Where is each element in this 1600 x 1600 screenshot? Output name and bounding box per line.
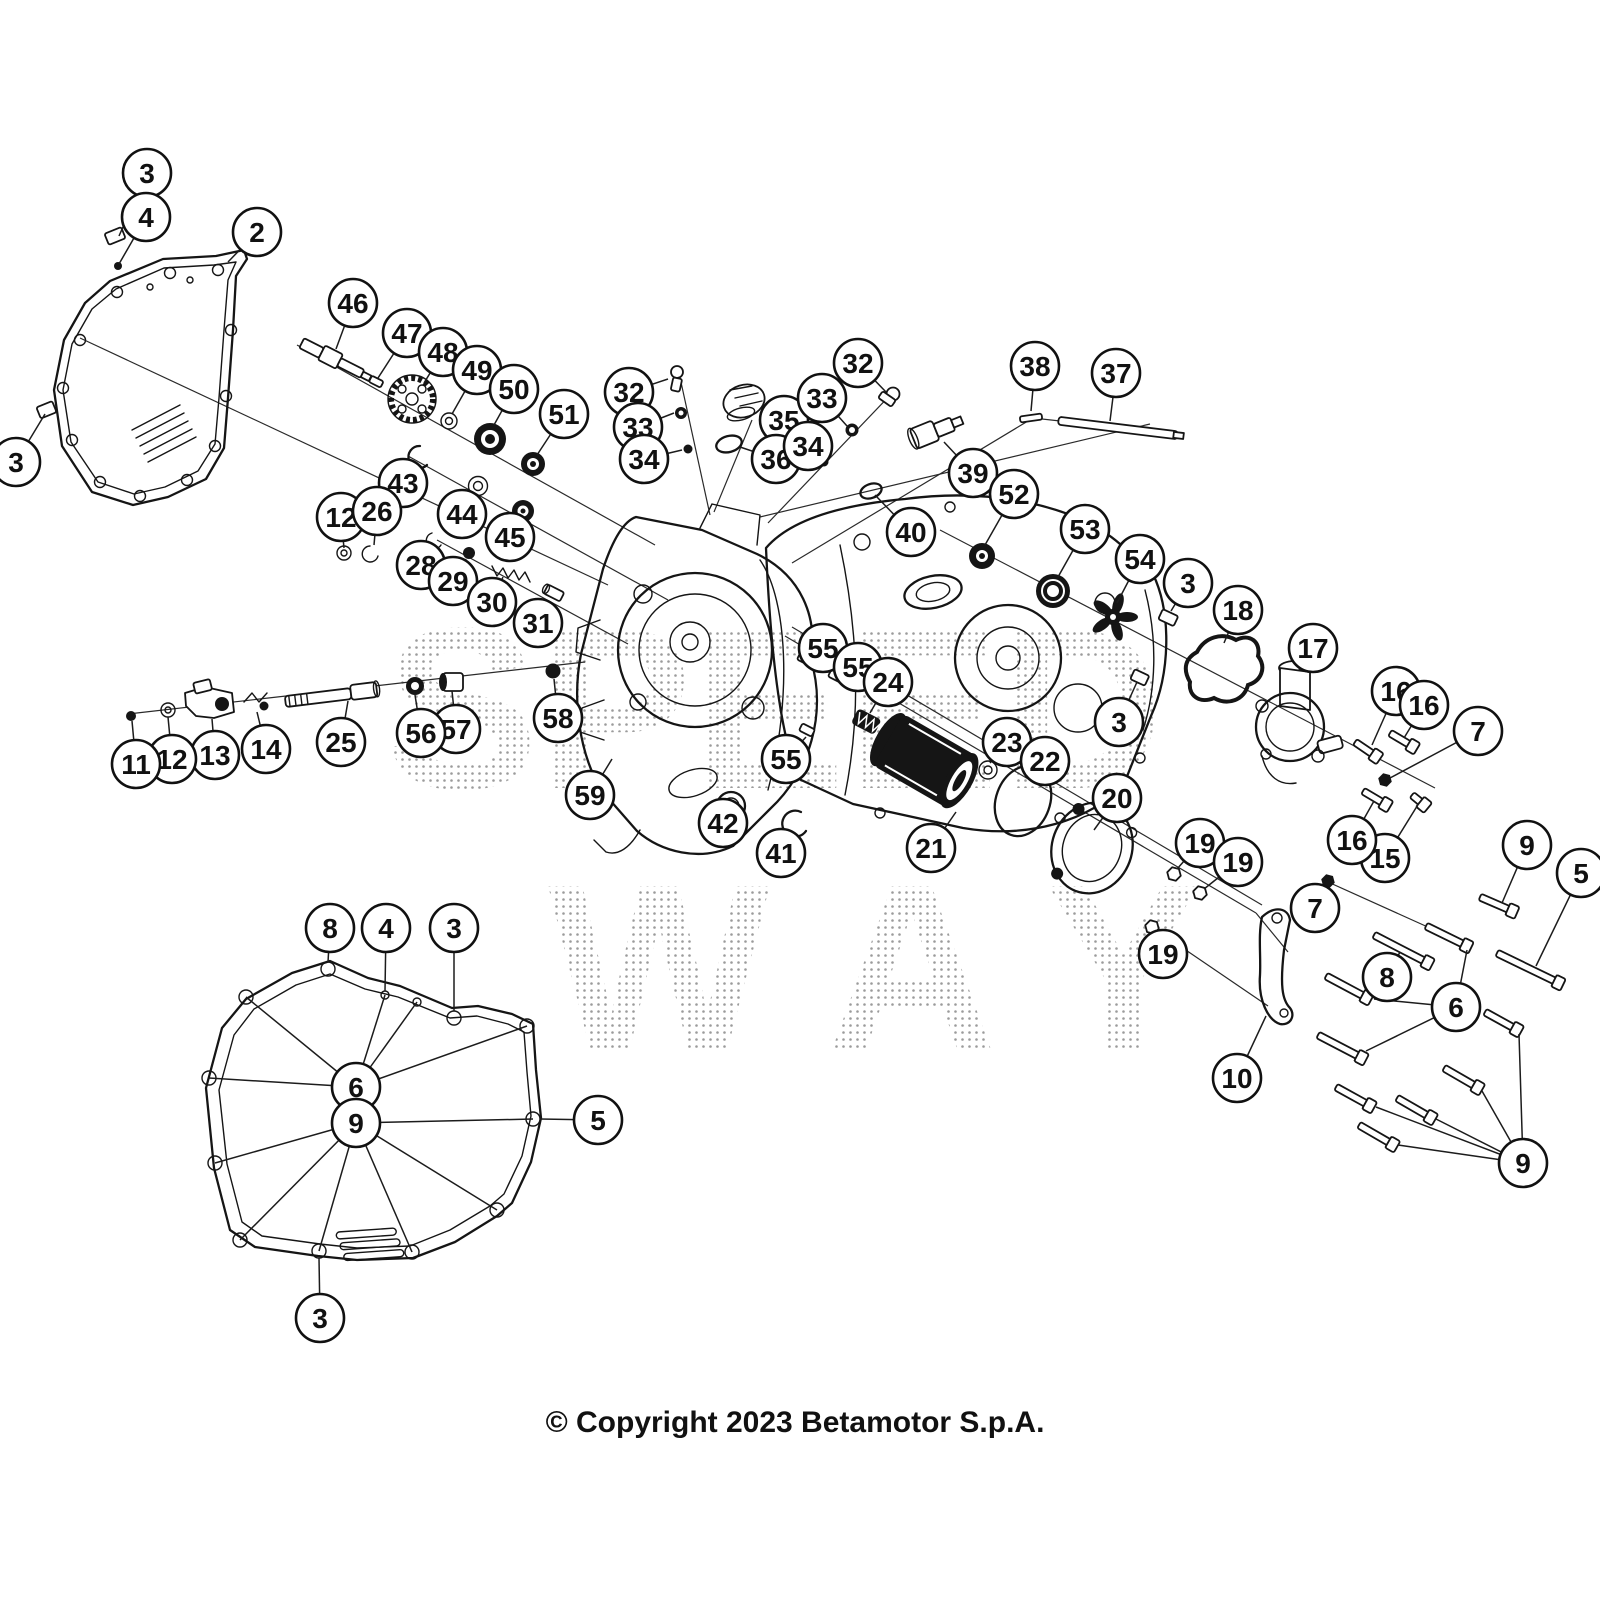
callout-7: 7 xyxy=(1454,707,1502,755)
parts-diagram-page: SPEED WAY xyxy=(0,0,1600,1600)
svg-text:31: 31 xyxy=(522,608,553,639)
bolt xyxy=(1423,920,1474,954)
svg-text:30: 30 xyxy=(476,587,507,618)
svg-text:46: 46 xyxy=(337,288,368,319)
callout-20: 20 xyxy=(1093,774,1141,822)
callout-42: 42 xyxy=(699,799,747,847)
bolt xyxy=(1482,1006,1524,1037)
callout-3: 3 xyxy=(430,904,478,952)
svg-text:16: 16 xyxy=(1408,690,1439,721)
callout-24: 24 xyxy=(864,658,912,706)
bolt xyxy=(1333,1081,1377,1113)
callout-26: 26 xyxy=(353,487,401,535)
svg-text:17: 17 xyxy=(1297,633,1328,664)
svg-text:7: 7 xyxy=(1470,716,1486,747)
callout-22: 22 xyxy=(1021,737,1069,785)
svg-text:54: 54 xyxy=(1124,544,1156,575)
svg-text:41: 41 xyxy=(765,838,796,869)
thrust-washer-49 xyxy=(441,413,457,429)
svg-text:19: 19 xyxy=(1222,847,1253,878)
callout-30: 30 xyxy=(468,578,516,626)
gasket-vent-slots xyxy=(132,405,196,462)
callout-32: 32 xyxy=(834,339,882,387)
callout-45: 45 xyxy=(486,513,534,561)
callout-34: 34 xyxy=(784,422,832,470)
svg-text:16: 16 xyxy=(1336,825,1367,856)
callout-8: 8 xyxy=(306,904,354,952)
callout-16: 16 xyxy=(1400,681,1448,729)
primary-gear-50 xyxy=(474,423,506,455)
breather-fitting-39 xyxy=(905,409,965,450)
svg-text:51: 51 xyxy=(548,399,579,430)
callout-9: 9 xyxy=(1499,1139,1547,1187)
callout-16: 16 xyxy=(1328,816,1376,864)
svg-text:34: 34 xyxy=(792,431,824,462)
svg-text:3: 3 xyxy=(312,1303,328,1334)
svg-text:39: 39 xyxy=(957,458,988,489)
bolt xyxy=(1477,891,1519,919)
svg-text:12: 12 xyxy=(325,502,356,533)
seal-52 xyxy=(969,543,995,569)
svg-text:25: 25 xyxy=(325,727,356,758)
callout-3: 3 xyxy=(0,438,40,486)
callout-3: 3 xyxy=(1095,698,1143,746)
bolt xyxy=(1408,790,1432,813)
svg-text:19: 19 xyxy=(1184,828,1215,859)
washer-12-clip-26 xyxy=(337,546,378,562)
bolt xyxy=(1315,1029,1369,1066)
svg-text:10: 10 xyxy=(1221,1063,1252,1094)
callout-37: 37 xyxy=(1092,349,1140,397)
svg-text:2: 2 xyxy=(249,217,265,248)
svg-text:8: 8 xyxy=(1379,962,1395,993)
svg-text:4: 4 xyxy=(138,202,154,233)
callout-11: 11 xyxy=(112,740,160,788)
svg-text:12: 12 xyxy=(156,744,187,775)
svg-text:9: 9 xyxy=(348,1108,364,1139)
callout-3: 3 xyxy=(1164,559,1212,607)
nut-29 xyxy=(463,547,475,559)
callout-56: 56 xyxy=(397,709,445,757)
svg-text:14: 14 xyxy=(250,734,282,765)
drain-bolt-left-set xyxy=(671,366,693,454)
svg-text:18: 18 xyxy=(1222,595,1253,626)
callout-50: 50 xyxy=(490,365,538,413)
svg-text:32: 32 xyxy=(842,348,873,379)
svg-text:55: 55 xyxy=(770,744,801,775)
bearing-51 xyxy=(521,452,545,476)
bolt xyxy=(1387,727,1421,754)
callout-52: 52 xyxy=(990,470,1038,518)
dipstick-rod-37 xyxy=(1058,417,1184,440)
callout-34: 34 xyxy=(620,435,668,483)
callout-59: 59 xyxy=(566,771,614,819)
svg-text:19: 19 xyxy=(1147,939,1178,970)
callout-54: 54 xyxy=(1116,535,1164,583)
svg-text:22: 22 xyxy=(1029,746,1060,777)
callout-55: 55 xyxy=(762,735,810,783)
bolt xyxy=(1360,785,1394,812)
screw-plug-left xyxy=(36,401,56,418)
axis-line xyxy=(714,420,752,512)
callout-17: 17 xyxy=(1289,624,1337,672)
svg-text:45: 45 xyxy=(494,522,525,553)
callout-46: 46 xyxy=(329,279,377,327)
svg-text:29: 29 xyxy=(437,566,468,597)
clutch-cover-gasket xyxy=(54,250,247,505)
bolt xyxy=(1356,1119,1401,1152)
callout-21: 21 xyxy=(907,824,955,872)
svg-text:26: 26 xyxy=(361,496,392,527)
svg-text:40: 40 xyxy=(895,517,926,548)
svg-text:23: 23 xyxy=(991,727,1022,758)
exploded-parts-diagram: SPEED WAY xyxy=(0,0,1600,1600)
svg-text:56: 56 xyxy=(405,718,436,749)
nut xyxy=(1378,773,1392,787)
callout-44: 44 xyxy=(438,490,486,538)
callout-33: 33 xyxy=(798,374,846,422)
svg-text:24: 24 xyxy=(872,667,904,698)
callout-10: 10 xyxy=(1213,1054,1261,1102)
callout-19: 19 xyxy=(1214,838,1262,886)
svg-text:44: 44 xyxy=(446,499,478,530)
svg-text:5: 5 xyxy=(1573,858,1589,889)
bolt xyxy=(1351,737,1383,765)
callout-31: 31 xyxy=(514,599,562,647)
bolt xyxy=(1441,1062,1486,1095)
callout-40: 40 xyxy=(887,508,935,556)
svg-text:49: 49 xyxy=(461,355,492,386)
callout-13: 13 xyxy=(191,731,239,779)
svg-text:21: 21 xyxy=(915,833,946,864)
callout-3: 3 xyxy=(296,1294,344,1342)
pin-38 xyxy=(1020,413,1043,422)
svg-text:58: 58 xyxy=(542,703,573,734)
bolt xyxy=(1494,947,1566,991)
svg-text:3: 3 xyxy=(1180,568,1196,599)
callout-7: 7 xyxy=(1291,884,1339,932)
svg-text:37: 37 xyxy=(1100,358,1131,389)
callout-25: 25 xyxy=(317,718,365,766)
svg-text:3: 3 xyxy=(8,447,24,478)
kickstart-sprocket xyxy=(388,375,436,423)
callout-18: 18 xyxy=(1214,586,1262,634)
callout-58: 58 xyxy=(534,694,582,742)
callout-4: 4 xyxy=(362,904,410,952)
svg-text:34: 34 xyxy=(628,444,660,475)
callout-9: 9 xyxy=(1503,821,1551,869)
svg-text:47: 47 xyxy=(391,318,422,349)
callout-14: 14 xyxy=(242,725,290,773)
bolt xyxy=(1394,1092,1439,1125)
callout-41: 41 xyxy=(757,829,805,877)
callout-53: 53 xyxy=(1061,505,1109,553)
screw-plug-top-left xyxy=(104,227,125,270)
svg-text:38: 38 xyxy=(1019,351,1050,382)
callout-3: 3 xyxy=(123,149,171,197)
pump-gear-53 xyxy=(1036,574,1070,608)
svg-text:33: 33 xyxy=(806,383,837,414)
idle-gear-shaft xyxy=(298,335,374,384)
callout-5: 5 xyxy=(1557,849,1600,897)
cover-vent-slots xyxy=(336,1228,404,1262)
callout-8: 8 xyxy=(1363,953,1411,1001)
svg-text:7: 7 xyxy=(1307,893,1323,924)
axis-line xyxy=(679,373,710,515)
gasket-bolt-holes xyxy=(58,265,237,502)
svg-text:20: 20 xyxy=(1101,783,1132,814)
water-pump-body xyxy=(1256,661,1343,784)
axis-line xyxy=(1328,882,1430,928)
callout-4: 4 xyxy=(122,193,170,241)
leader-line xyxy=(356,1119,533,1123)
svg-text:3: 3 xyxy=(1111,707,1127,738)
svg-text:5: 5 xyxy=(590,1105,606,1136)
svg-text:3: 3 xyxy=(446,913,462,944)
callout-6: 6 xyxy=(1432,983,1480,1031)
callout-2: 2 xyxy=(233,208,281,256)
svg-text:6: 6 xyxy=(1448,992,1464,1023)
svg-text:52: 52 xyxy=(998,479,1029,510)
callout-51: 51 xyxy=(540,390,588,438)
svg-text:50: 50 xyxy=(498,374,529,405)
svg-text:9: 9 xyxy=(1515,1148,1531,1179)
callout-5: 5 xyxy=(574,1096,622,1144)
svg-text:3: 3 xyxy=(139,158,155,189)
leader-line xyxy=(356,1026,527,1087)
svg-text:8: 8 xyxy=(322,913,338,944)
callout-38: 38 xyxy=(1011,342,1059,390)
svg-text:11: 11 xyxy=(121,749,151,780)
copyright-text: © Copyright 2023 Betamotor S.p.A. xyxy=(546,1406,1045,1439)
nut xyxy=(1167,867,1181,881)
svg-text:9: 9 xyxy=(1519,830,1535,861)
callout-19: 19 xyxy=(1139,930,1187,978)
svg-text:13: 13 xyxy=(199,740,230,771)
svg-text:42: 42 xyxy=(707,808,738,839)
svg-text:59: 59 xyxy=(574,780,605,811)
svg-text:53: 53 xyxy=(1069,514,1100,545)
svg-text:4: 4 xyxy=(378,913,394,944)
callout-9: 9 xyxy=(332,1099,380,1147)
